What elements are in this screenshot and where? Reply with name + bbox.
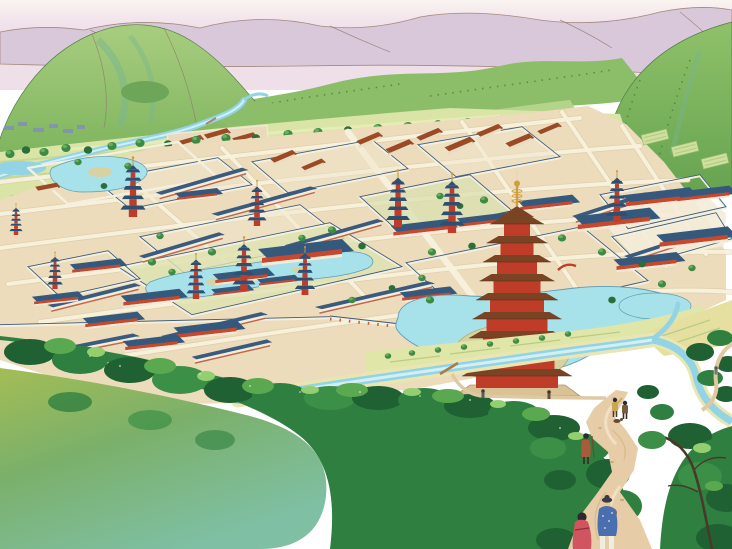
traveler-yellow — [612, 398, 622, 417]
illustration-canvas — [0, 0, 732, 549]
traveler-tiny — [714, 366, 717, 374]
painting — [0, 0, 732, 549]
traveler-dark — [622, 401, 628, 419]
traveler-tiny — [547, 390, 551, 399]
traveler-tiny — [481, 389, 485, 398]
